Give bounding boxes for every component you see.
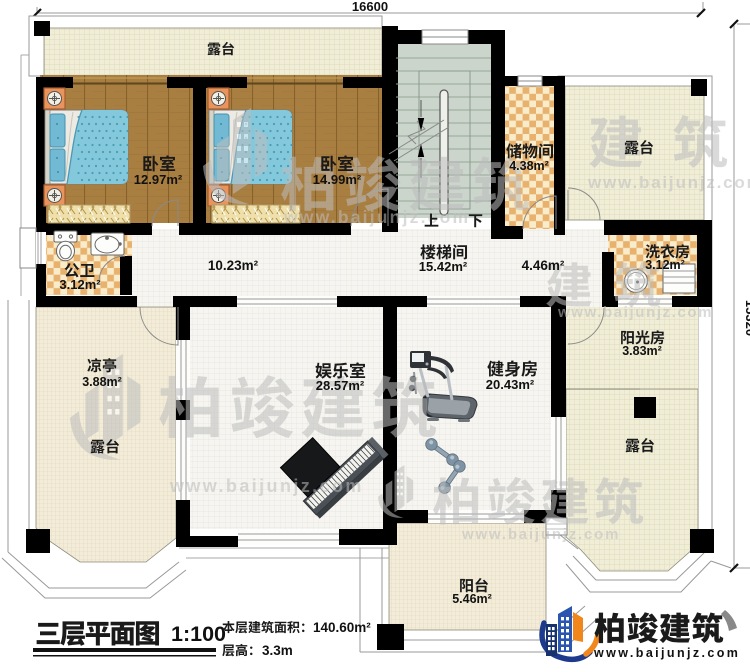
svg-text:www.baijunjz.com: www.baijunjz.com (169, 476, 364, 496)
svg-text:16600: 16600 (352, 0, 388, 14)
svg-text:3.12m²: 3.12m² (645, 258, 685, 272)
svg-text:20.43m²: 20.43m² (486, 377, 535, 392)
svg-text:www.baijunjz.com: www.baijunjz.com (283, 207, 470, 227)
svg-text:www.baijunjz.com: www.baijunjz.com (587, 173, 750, 192)
svg-text:www.baijunjz.com: www.baijunjz.com (461, 526, 620, 543)
svg-text:3.88m²: 3.88m² (82, 375, 122, 389)
svg-text:www.baijunjz.com: www.baijunjz.com (593, 646, 740, 660)
svg-text:12.97m²: 12.97m² (134, 172, 183, 187)
svg-text:15.42m²: 15.42m² (419, 259, 468, 274)
svg-text:14.99m²: 14.99m² (313, 172, 362, 187)
svg-text:3.12m²: 3.12m² (59, 277, 101, 292)
svg-text:4.38m²: 4.38m² (509, 159, 549, 173)
svg-text:10.23m²: 10.23m² (208, 258, 259, 273)
svg-text:15320: 15320 (743, 300, 750, 336)
svg-text:1:100: 1:100 (171, 622, 226, 646)
svg-text:140.60m²: 140.60m² (313, 620, 371, 635)
svg-text:3.3m: 3.3m (262, 643, 293, 658)
svg-text:4.46m²: 4.46m² (522, 258, 565, 273)
svg-text:28.57m²: 28.57m² (316, 378, 365, 393)
svg-text:3.83m²: 3.83m² (622, 344, 662, 358)
svg-text:www.baijunjz.com: www.baijunjz.com (557, 304, 713, 321)
svg-text:5.46m²: 5.46m² (452, 592, 492, 606)
